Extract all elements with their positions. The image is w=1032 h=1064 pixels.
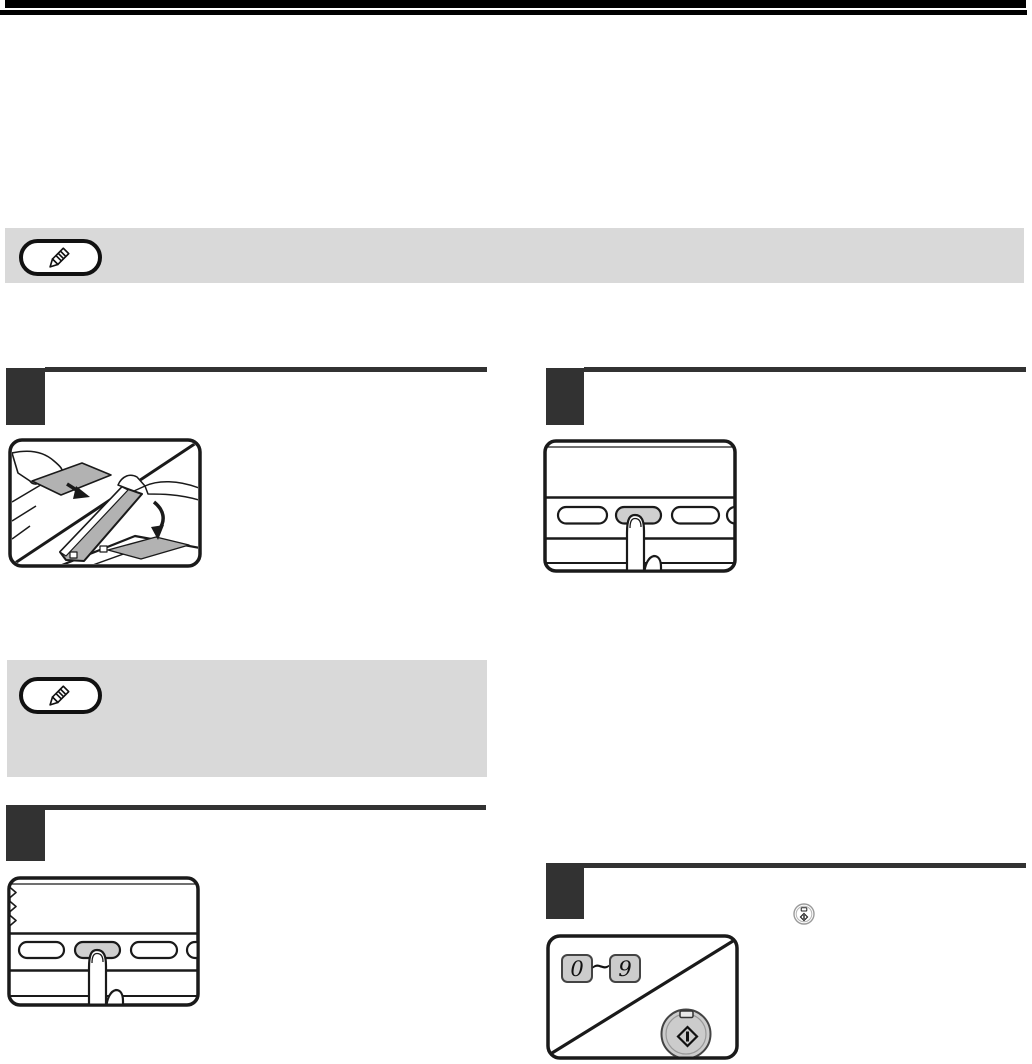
note-box (7, 660, 487, 777)
panel-key-press-illustration (543, 439, 737, 573)
panel-key-press-illustration (7, 876, 200, 1007)
panel-key (19, 942, 64, 958)
range-tilde: ~ (590, 951, 613, 982)
note-badge (19, 677, 102, 714)
panel-key (558, 507, 607, 524)
step-marker (546, 863, 584, 919)
page-top-rule-thin (0, 10, 1027, 15)
panel-key (672, 507, 719, 524)
step-marker (6, 805, 45, 861)
numeric-keys-start-illustration: 0 ~ 9 (546, 934, 739, 1060)
original-placement-illustration (8, 438, 202, 568)
page-top-rule-thick (5, 0, 1026, 8)
step-rule (45, 805, 486, 810)
start-indicator (680, 1011, 693, 1018)
start-button-icon (662, 1010, 711, 1059)
step-marker (546, 368, 584, 425)
pencil-icon (28, 244, 92, 271)
pencil-icon (28, 682, 92, 709)
numeric-key-range: 0 ~ 9 (562, 951, 640, 982)
step-rule (584, 863, 1026, 868)
step-rule (45, 367, 487, 372)
numeric-key-9-label: 9 (618, 957, 631, 981)
panel-key (131, 942, 177, 958)
manual-page: 0 ~ 9 (0, 0, 1032, 1064)
numeric-key-0-label: 0 (570, 957, 583, 981)
start-key-icon (793, 903, 815, 925)
step-rule (584, 367, 1026, 372)
note-badge (19, 239, 102, 276)
step-marker (6, 368, 45, 425)
note-box (5, 228, 1024, 283)
